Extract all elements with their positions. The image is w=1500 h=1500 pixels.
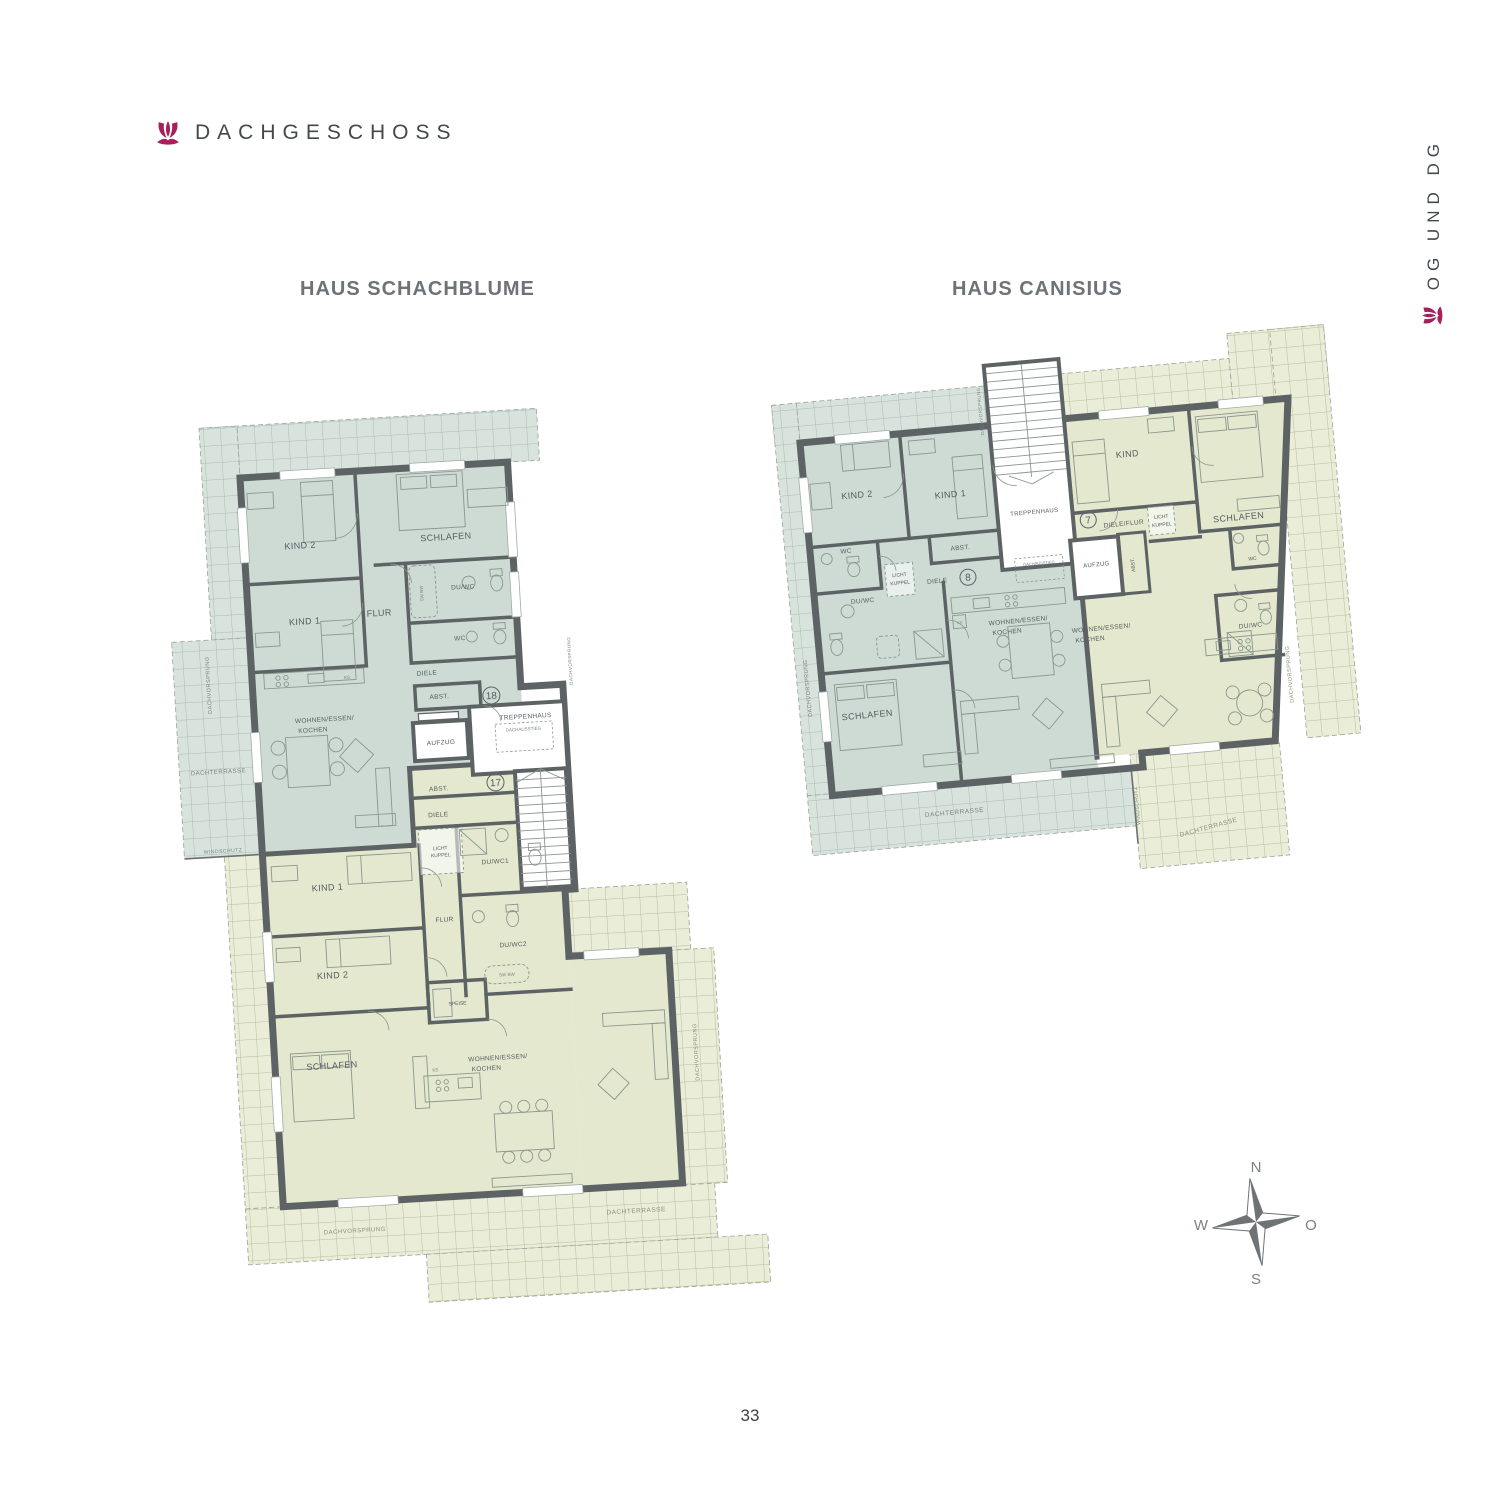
room-label-kind2: KIND 2: [284, 540, 316, 552]
room-label-kind: KIND: [1115, 448, 1139, 460]
plan-haus-schachblume: KIND 2 SCHLAFEN KIND 1 FLUR DU/WC WC DIE…: [159, 398, 771, 1316]
compass-north: N: [1251, 1159, 1262, 1176]
unit-number-17: 17: [490, 778, 502, 790]
overhang-label-stairs: DACHVORSPRUNG: [566, 637, 574, 685]
floorplans-canvas: KIND 2 SCHLAFEN KIND 1 FLUR DU/WC WC DIE…: [0, 0, 1500, 1500]
room-label-diele: DIELE: [417, 670, 438, 678]
skylight-label-2: KUPPEL: [431, 852, 451, 859]
compass-west: W: [1194, 1217, 1209, 1234]
unit-number-18: 18: [486, 691, 498, 703]
washer-label: SW BW: [419, 585, 425, 602]
room-label-abst: ABST.: [429, 693, 449, 701]
room-label-flur: FLUR: [435, 916, 454, 924]
room-label-abst: ABST.: [1130, 558, 1137, 572]
room-label-wc: WC: [454, 635, 466, 643]
room-label-wc: WC: [840, 548, 852, 556]
plan-haus-canisius: KIND 2 KIND 1 WC ABST. LICHT KUPPEL DIEL…: [769, 325, 1372, 899]
washer-label-2: SW BW: [499, 972, 516, 978]
fridge-label: KS: [957, 620, 963, 625]
room-label-diele: DIELE: [428, 811, 449, 819]
compass-rose: N O S W: [1194, 1159, 1317, 1288]
skylight-label-1: LICHT: [433, 845, 448, 852]
room-label-speise: SPEISE: [448, 1000, 467, 1007]
room-label-flur: FLUR: [366, 607, 392, 618]
room-label-wc: WC: [1248, 556, 1257, 563]
room-label-duwc: DU/WC: [451, 583, 475, 591]
brochure-page: DACHGESCHOSS HAUS SCHACHBLUME HAUS CANIS…: [0, 0, 1500, 1500]
room-label-kind2: KIND 2: [317, 969, 349, 981]
room-label-kind1: KIND 1: [311, 882, 343, 894]
fridge-label-2: KS: [432, 1067, 438, 1072]
page-number: 33: [0, 1406, 1500, 1426]
fridge-label: KS: [344, 675, 350, 680]
skylight-box-8: [884, 562, 915, 596]
overhang-label-right: DACHVORSPRUNG: [1285, 645, 1296, 703]
room-label-kind1: KIND 1: [289, 615, 321, 627]
compass-east: O: [1305, 1217, 1317, 1234]
room-label-abst: ABST.: [429, 785, 449, 793]
compass-south: S: [1251, 1271, 1261, 1288]
